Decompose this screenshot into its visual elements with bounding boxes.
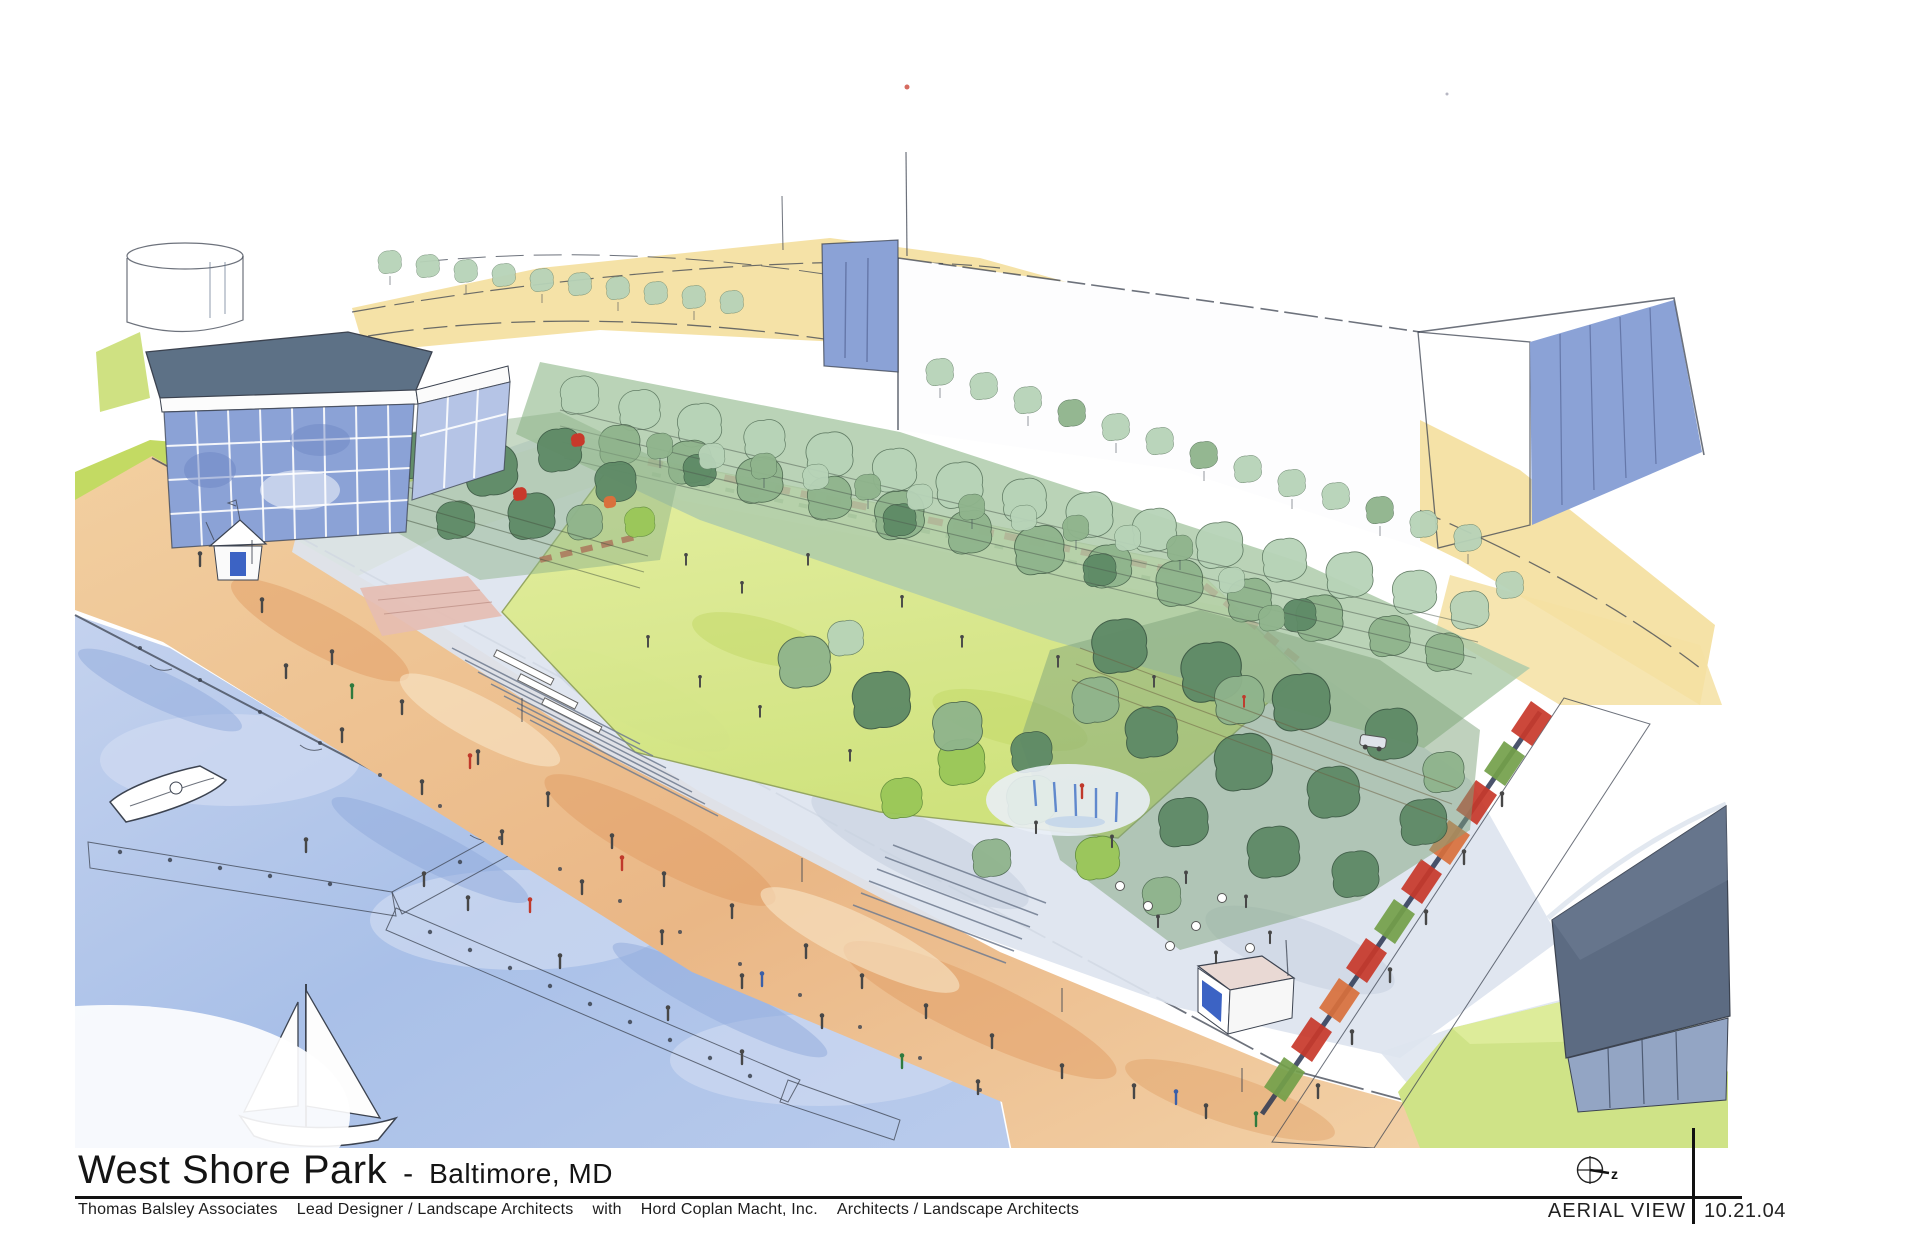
credit-role-primary: Lead Designer / Landscape Architects (297, 1201, 574, 1219)
north-marker-label: z (1611, 1166, 1618, 1182)
paint-speck (905, 85, 910, 90)
credit-conjunction: with (592, 1201, 621, 1219)
fountain-plaza (986, 764, 1150, 836)
aerial-rendering (0, 0, 1920, 1256)
sheet-date: 10.21.04 (1704, 1200, 1786, 1223)
view-label: AERIAL VIEW (1548, 1200, 1686, 1223)
sheet-title: West Shore Park (78, 1148, 387, 1193)
paint-speck (1446, 93, 1449, 96)
dark-roof-building (1548, 804, 1730, 1112)
storage-tank (127, 243, 243, 332)
credit-firm-primary: Thomas Balsley Associates (78, 1201, 278, 1219)
credit-role-secondary: Architects / Landscape Architects (837, 1201, 1079, 1219)
north-arrow-icon: z (1572, 1150, 1636, 1194)
presentation-sheet: West Shore Park - Baltimore, MD Thomas B… (0, 0, 1920, 1256)
title-block: West Shore Park - Baltimore, MD (78, 1148, 613, 1193)
title-separator: - (403, 1157, 413, 1191)
title-divider (1692, 1128, 1695, 1224)
sheet-location: Baltimore, MD (429, 1158, 613, 1190)
credits: Thomas Balsley Associates Lead Designer … (78, 1201, 1079, 1219)
credit-firm-secondary: Hord Coplan Macht, Inc. (641, 1201, 818, 1219)
title-rule (75, 1196, 1742, 1199)
